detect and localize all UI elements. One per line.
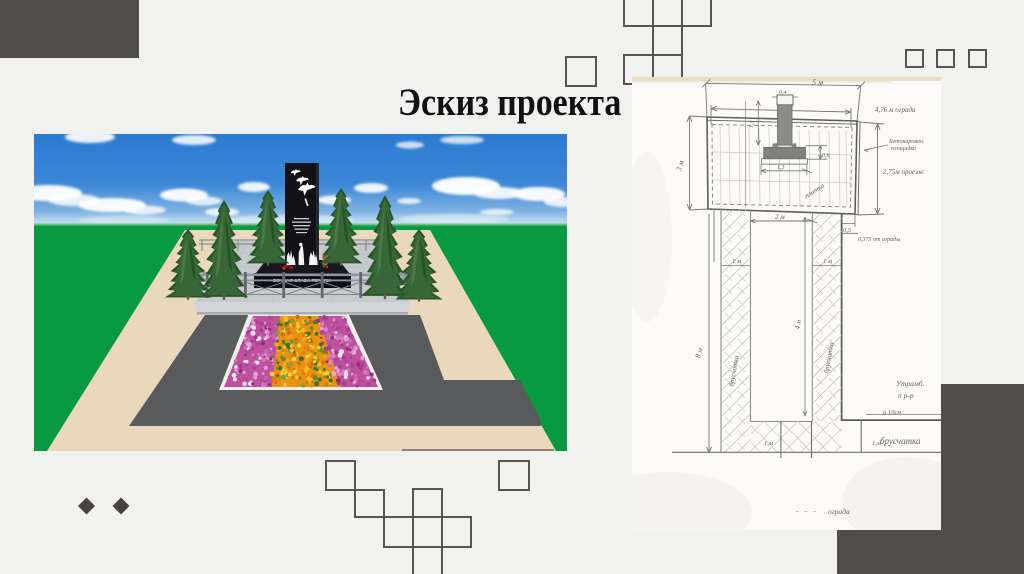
svg-text:Утрамб.: Утрамб. xyxy=(896,379,925,388)
svg-text:брусчатка: брусчатка xyxy=(880,436,921,446)
svg-text:2,75м проезж: 2,75м проезж xyxy=(883,168,925,176)
svg-text:площадка: площадка xyxy=(891,145,916,152)
svg-text:4,76 м ограда: 4,76 м ограда xyxy=(875,106,916,114)
svg-text:1,3: 1,3 xyxy=(777,165,785,171)
svg-text:1 м: 1 м xyxy=(732,258,741,265)
svg-text:а 10см: а 10см xyxy=(883,409,901,416)
svg-text:п р-р: п р-р xyxy=(898,391,914,400)
svg-text:0,6: 0,6 xyxy=(822,153,830,159)
svg-text:− − −: − − − xyxy=(795,508,818,516)
svg-text:Бетонирован.: Бетонирован. xyxy=(888,139,924,145)
svg-text:0,5: 0,5 xyxy=(843,227,852,234)
svg-text:0,375 от ограды: 0,375 от ограды xyxy=(858,236,900,243)
svg-text:1,м: 1,м xyxy=(764,440,773,447)
svg-text:ограда: ограда xyxy=(828,507,850,516)
svg-text:5 м: 5 м xyxy=(812,78,823,87)
svg-text:2 м: 2 м xyxy=(775,213,785,221)
svg-text:1 м: 1 м xyxy=(823,258,832,265)
